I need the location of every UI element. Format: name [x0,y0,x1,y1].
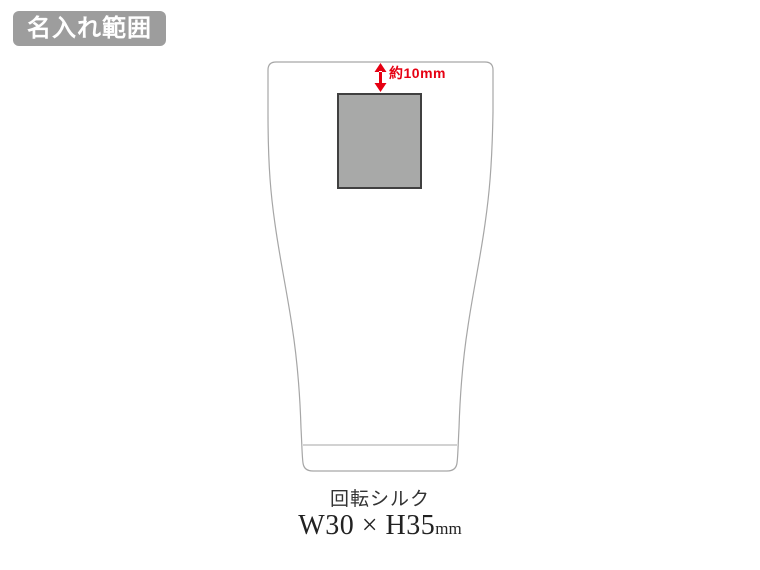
print-spec-caption: 回転シルク W30 × H35mm [0,489,760,544]
print-size-value: W30 × H35 [298,510,435,541]
print-method-label: 回転シルク [0,489,760,510]
print-size-unit: mm [435,519,461,538]
print-area-rect [337,93,422,189]
top-margin-label: 約10mm [389,65,446,81]
double-arrow-shape [375,63,387,92]
print-size-label: W30 × H35mm [0,511,760,544]
double-arrow-icon [373,63,388,92]
